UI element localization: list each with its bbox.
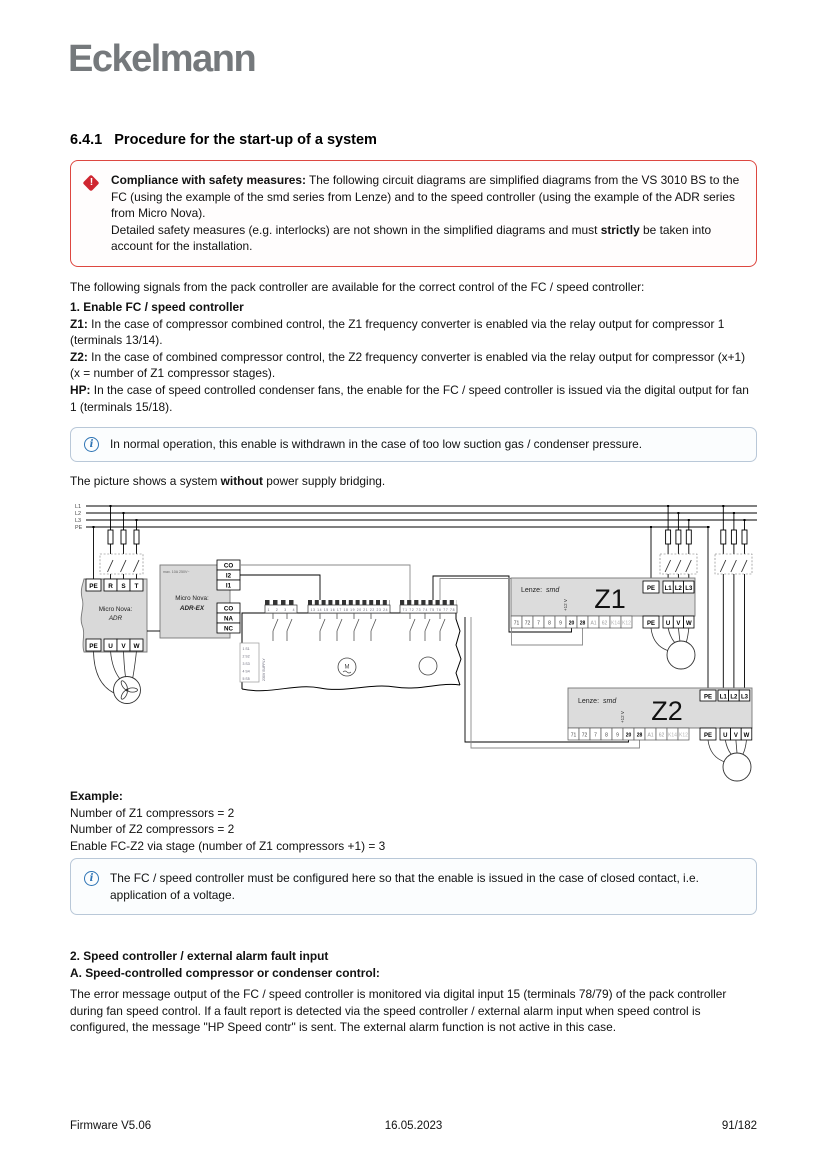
svg-text:K12: K12: [622, 621, 631, 627]
svg-text:S: S: [121, 583, 126, 590]
enable-heading: 1. Enable FC / speed controller: [70, 299, 757, 316]
svg-text:U: U: [723, 733, 727, 739]
section2-body: The error message output of the FC / spe…: [70, 986, 757, 1036]
example-line-3: Enable FC-Z2 via stage (number of Z1 com…: [70, 838, 757, 855]
picture-note-pre: The picture shows a system: [70, 474, 221, 488]
signals-paragraphs: The following signals from the pack cont…: [70, 279, 757, 415]
svg-text:A1: A1: [590, 621, 596, 627]
svg-text:V: V: [121, 643, 126, 650]
supply-terminal-block: 1 S1 2 S2 3 S3 4 S4 5 S5 230V SUPPLY: [240, 643, 266, 682]
svg-text:PE: PE: [89, 583, 98, 590]
svg-text:62: 62: [659, 733, 665, 739]
compressor-symbol: M: [338, 658, 356, 676]
z1-series: smd: [546, 587, 560, 594]
bus-label-pe: PE: [75, 525, 83, 531]
svg-text:L1: L1: [665, 586, 673, 592]
svg-text:71: 71: [571, 733, 577, 739]
svg-text:8: 8: [548, 621, 551, 627]
svg-text:I1: I1: [226, 583, 232, 590]
co-signal-wire: [240, 565, 410, 600]
z1-name: Z1: [594, 584, 626, 614]
example-line-2: Number of Z2 compressors = 2: [70, 821, 757, 838]
example-line-1: Number of Z1 compressors = 2: [70, 805, 757, 822]
svg-text:9: 9: [616, 733, 619, 739]
power-bus-lines: [86, 506, 757, 527]
section2-block: 2. Speed controller / external alarm fau…: [70, 948, 757, 1036]
intro-paragraph: The following signals from the pack cont…: [70, 279, 757, 296]
fan-symbol: [419, 657, 437, 675]
svg-text:W: W: [744, 733, 750, 739]
svg-text:CO: CO: [224, 606, 233, 613]
svg-text:K12: K12: [679, 733, 688, 739]
section2-heading-1: 2. Speed controller / external alarm fau…: [70, 948, 757, 965]
picture-note: The picture shows a system without power…: [70, 473, 757, 490]
svg-text:CO: CO: [224, 563, 233, 570]
bus-labels: L1 L2 L3 PE: [75, 504, 83, 531]
bus-label-l1: L1: [75, 504, 81, 510]
footer-firmware: Firmware V5.06: [70, 1120, 151, 1132]
hp-lead: HP:: [70, 383, 90, 397]
z2-brand: Lenze:: [578, 698, 599, 705]
svg-text:71 72 73 74 75 76 77 78: 71 72 73 74 75 76 77 78: [403, 608, 455, 612]
info-box-enable: i In normal operation, this enable is wi…: [70, 427, 757, 462]
adr-subtitle: ADR: [108, 615, 123, 622]
svg-text:L2: L2: [730, 695, 738, 701]
svg-text:5 S5: 5 S5: [243, 677, 250, 681]
info-box-configure-text: The FC / speed controller must be config…: [110, 870, 743, 903]
z2-item: Z2: In the case of combined compressor c…: [70, 349, 757, 382]
svg-text:L3: L3: [685, 586, 693, 592]
svg-text:PE: PE: [89, 643, 98, 650]
z1-converter-box: Lenze: smd Z1 +12 V PE L1 L2 L3 71: [511, 578, 695, 628]
z2-lead: Z2:: [70, 350, 88, 364]
z1-brand: Lenze:: [521, 587, 542, 594]
svg-text:7: 7: [537, 621, 540, 627]
svg-text:28: 28: [637, 733, 643, 739]
z2-name: Z2: [651, 696, 683, 726]
document-page: Eckelmann 6.4.1Procedure for the start-u…: [0, 0, 827, 1169]
relay-contacts: [273, 613, 445, 641]
svg-text:20: 20: [569, 621, 575, 627]
hp-text: In the case of speed controlled condense…: [70, 383, 749, 414]
adr-fan-motor: [94, 651, 141, 704]
z1-lead: Z1:: [70, 317, 88, 331]
svg-text:7: 7: [594, 733, 597, 739]
svg-text:I2: I2: [226, 573, 232, 580]
junction-dots: [93, 505, 746, 528]
picture-note-bold: without: [221, 474, 263, 488]
example-heading: Example:: [70, 788, 757, 805]
info-box-enable-text: In normal operation, this enable is with…: [110, 436, 642, 453]
example-block: Example: Number of Z1 compressors = 2 Nu…: [70, 788, 757, 854]
circuit-diagram: L1 L2 L3 PE: [70, 497, 760, 787]
warning-exclamation: !: [83, 176, 100, 188]
adr-title: Micro Nova:: [99, 606, 133, 613]
svg-text:L2: L2: [675, 586, 683, 592]
svg-text:72: 72: [582, 733, 588, 739]
svg-text:72: 72: [525, 621, 531, 627]
z2-feeder-wires: [708, 506, 745, 690]
svg-text:2 S2: 2 S2: [243, 655, 250, 659]
z2-pe-top: PE: [704, 695, 712, 701]
svg-text:NA: NA: [224, 616, 233, 623]
warning-text: Compliance with safety measures: The fol…: [111, 172, 743, 255]
right-fuses: [666, 530, 747, 544]
svg-text:T: T: [135, 583, 139, 590]
z1-item: Z1: In the case of compressor combined c…: [70, 316, 757, 349]
svg-text:13 14 15 16 17 18 19 20 21 22: 13 14 15 16 17 18 19 20 21 22 23 24: [311, 608, 388, 612]
svg-text:R: R: [108, 583, 113, 590]
terminal-comb-b: 13 14 15 16 17 18 19 20 21 22 23 24: [308, 603, 390, 614]
svg-text:K14: K14: [611, 621, 620, 627]
picture-note-post: power supply bridging.: [263, 474, 385, 488]
bus-label-l2: L2: [75, 511, 81, 517]
z1-motor: [651, 628, 695, 669]
warning-lead: Compliance with safety measures:: [111, 173, 306, 187]
svg-text:V: V: [734, 733, 738, 739]
right-contactors: [660, 554, 752, 574]
svg-text:8: 8: [605, 733, 608, 739]
safety-warning-box: ! Compliance with safety measures: The f…: [70, 160, 757, 267]
svg-text:4 S4: 4 S4: [243, 670, 250, 674]
z1-enable-label: +12 V: [563, 599, 568, 611]
svg-text:W: W: [686, 621, 692, 627]
terminal-comb-c: 71 72 73 74 75 76 77 78: [400, 603, 457, 614]
warning-icon: !: [83, 175, 100, 192]
i2-signal-wire: [240, 575, 320, 600]
info-box-configure: i The FC / speed controller must be conf…: [70, 858, 757, 915]
svg-text:L3: L3: [741, 695, 749, 701]
svg-text:A1: A1: [647, 733, 653, 739]
adr-box: PER ST PEU VW Micro Nova: ADR: [81, 579, 147, 652]
svg-text:9: 9: [559, 621, 562, 627]
svg-text:3 S3: 3 S3: [243, 662, 250, 666]
adrex-spec-smallprint: max. 10A 250V~: [163, 570, 189, 574]
warning-body-2: Detailed safety measures (e.g. interlock…: [111, 223, 601, 237]
svg-text:K14: K14: [668, 733, 677, 739]
svg-text:1 S1: 1 S1: [243, 647, 250, 651]
svg-text:W: W: [133, 643, 140, 650]
svg-text:28: 28: [580, 621, 586, 627]
svg-text:NC: NC: [224, 626, 233, 633]
z2-motor: [708, 740, 751, 781]
pack-controller-box: 1 2 3 4 13 14 15 16 17 18 19 20 21 22 23…: [240, 603, 461, 691]
warning-body-2-bold: strictly: [601, 223, 640, 237]
svg-text:L1: L1: [720, 695, 728, 701]
terminal-comb-a: 1 2 3 4: [265, 603, 297, 614]
z2-pe-out: PE: [704, 733, 712, 739]
adr-contactor: [100, 554, 143, 574]
adr-fuses: [108, 530, 139, 544]
section-heading: 6.4.1Procedure for the start-up of a sys…: [70, 132, 377, 148]
adrex-box: max. 10A 250V~ Micro Nova: ADR-EX CO I2 …: [160, 560, 240, 638]
hp-item: HP: In the case of speed controlled cond…: [70, 382, 757, 415]
svg-text:62: 62: [602, 621, 608, 627]
svg-text:U: U: [108, 643, 113, 650]
svg-text:71: 71: [514, 621, 520, 627]
z2-enable-label: +12 V: [620, 711, 625, 723]
bus-label-l3: L3: [75, 518, 81, 524]
section-number: 6.4.1: [70, 132, 102, 148]
z1-text: In the case of compressor combined contr…: [70, 317, 724, 348]
adrex-title: Micro Nova:: [175, 595, 209, 602]
section2-heading-2: A. Speed-controlled compressor or conden…: [70, 965, 757, 982]
z2-converter-box: Lenze: smd Z2 +12 V PE L1 L2 L3 71: [568, 688, 752, 740]
supply-label-vertical: 230V SUPPLY: [262, 658, 266, 681]
info-icon: i: [84, 437, 99, 452]
svg-text:20: 20: [626, 733, 632, 739]
footer-page-number: 91/182: [722, 1120, 757, 1132]
svg-text:U: U: [666, 621, 670, 627]
z2-series: smd: [603, 698, 617, 705]
z2-text: In the case of combined compressor contr…: [70, 350, 745, 381]
z1-pe-out: PE: [647, 621, 655, 627]
adrex-subtitle: ADR-EX: [179, 605, 205, 612]
svg-text:M: M: [345, 665, 350, 671]
info-icon: i: [84, 871, 99, 886]
company-logo: Eckelmann: [68, 38, 255, 81]
svg-text:V: V: [676, 621, 680, 627]
section-title: Procedure for the start-up of a system: [114, 132, 377, 148]
z1-pe-top: PE: [647, 586, 655, 592]
